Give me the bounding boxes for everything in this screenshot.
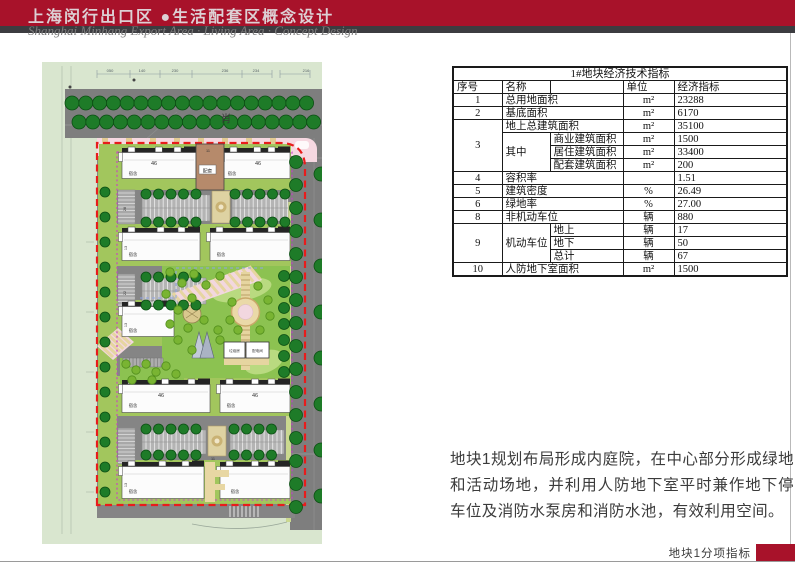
map-label: 46 — [255, 161, 261, 167]
cell-name: 基底面积 — [502, 107, 623, 120]
map-label: 46 — [151, 161, 157, 167]
cell-value: 67 — [674, 250, 787, 263]
map-label: 配电间 — [252, 348, 263, 353]
cell-unit: % — [623, 185, 674, 198]
cell-unit: 辆 — [623, 224, 674, 237]
map-label: 宿舍 — [129, 488, 138, 495]
map-label: 13 — [124, 323, 128, 327]
cell-value: 200 — [674, 159, 787, 172]
cell-unit: m² — [623, 120, 674, 133]
footer-rule — [0, 561, 795, 562]
cell-value: 50 — [674, 237, 787, 250]
cell-no: 9 — [453, 224, 502, 263]
cell-value: 1500 — [674, 263, 787, 277]
table-title: 1#地块经济技术指标 — [453, 67, 787, 81]
table-row: 4 容积率 1.51 — [453, 172, 787, 185]
map-label: 宿舍 — [227, 402, 236, 409]
col-header-name: 名称 — [502, 81, 550, 94]
map-label: 13 — [124, 483, 128, 487]
map-label: 垃圾房 — [229, 348, 240, 353]
map-label: 宿舍 — [231, 488, 240, 495]
description-paragraph: 地块1规划布局形成内庭院，在中心部分形成绿地和活动场地，并利用人防地下室平时兼作… — [450, 447, 794, 525]
cell-name: 建筑密度 — [502, 185, 623, 198]
map-label: 肖 — [221, 112, 232, 125]
cell-name: 绿地率 — [502, 198, 623, 211]
cell-no: 10 — [453, 263, 502, 277]
map-label: 050 — [107, 68, 114, 73]
cell-value: 33400 — [674, 146, 787, 159]
survey-point — [133, 79, 136, 82]
table-row: 6 绿地率 % 27.00 — [453, 198, 787, 211]
cell-value: 23288 — [674, 94, 787, 107]
map-label: 宿舍 — [129, 170, 138, 177]
cell-unit: m² — [623, 94, 674, 107]
cell-no: 3 — [453, 120, 502, 172]
table-row: 9 机动车位 地上 辆 17 — [453, 224, 787, 237]
cell-unit: m² — [623, 159, 674, 172]
cell-unit — [623, 172, 674, 185]
table-row: 2 基底面积 m² 6170 — [453, 107, 787, 120]
cell-subname: 商业建筑面积 — [550, 133, 623, 146]
map-label: 宿舍 — [228, 170, 237, 177]
map-label: 46 — [252, 393, 258, 399]
cell-unit: 辆 — [623, 211, 674, 224]
col-header-no: 序号 — [453, 81, 502, 94]
cell-subname: 配套建筑面积 — [550, 159, 623, 172]
cell-name: 非机动车位 — [502, 211, 623, 224]
cell-subname: 总计 — [550, 250, 623, 263]
cell-value: 17 — [674, 224, 787, 237]
cell-no: 2 — [453, 107, 502, 120]
cell-unit: m² — [623, 133, 674, 146]
cell-unit: m² — [623, 107, 674, 120]
table-row: 1 总用地面积 m² 23288 — [453, 94, 787, 107]
cell-value: 35100 — [674, 120, 787, 133]
table-row: 其中 商业建筑面积 m² 1500 — [453, 133, 787, 146]
map-label: 46 — [158, 393, 164, 399]
col-header-unit: 单位 — [623, 81, 674, 94]
map-label: 234 — [253, 68, 260, 73]
cell-name: 机动车位 — [502, 224, 550, 263]
cell-value: 27.00 — [674, 198, 787, 211]
col-header-empty — [550, 81, 623, 94]
cell-no: 6 — [453, 198, 502, 211]
cell-unit: 辆 — [623, 250, 674, 263]
cell-unit: 辆 — [623, 237, 674, 250]
cell-subname: 居住建筑面积 — [550, 146, 623, 159]
col-header-indicator: 经济指标 — [674, 81, 787, 94]
table-row: 10 人防地下室面积 m² 1500 — [453, 263, 787, 277]
slide: 上海闵行出口区 ●生活配套区概念设计 Shanghai Minhang Expo… — [0, 0, 795, 563]
site-plan-map: 050140230236234216肖464611配套宿舍宿舍宿舍宿舍宿舍464… — [42, 62, 322, 544]
map-label: 22 — [123, 291, 127, 295]
cell-name: 总用地面积 — [502, 94, 623, 107]
cell-name: 人防地下室面积 — [502, 263, 623, 277]
map-label: 宿舍 — [217, 251, 226, 258]
cell-name: 容积率 — [502, 172, 623, 185]
cell-no: 1 — [453, 94, 502, 107]
cell-name: 地上总建筑面积 — [502, 120, 623, 133]
cell-value: 880 — [674, 211, 787, 224]
cell-value: 1.51 — [674, 172, 787, 185]
map-label: 11 — [206, 149, 210, 153]
cell-value: 1500 — [674, 133, 787, 146]
bottom-road — [97, 505, 295, 518]
map-label: 配套 — [203, 168, 213, 175]
map-label: 236 — [222, 68, 229, 73]
cell-subname: 地上 — [550, 224, 623, 237]
cell-no: 8 — [453, 211, 502, 224]
cell-no: 4 — [453, 172, 502, 185]
cell-value: 6170 — [674, 107, 787, 120]
cell-unit: m² — [623, 146, 674, 159]
page-subtitle: Shanghai Minhang Export Area · Living Ar… — [28, 23, 358, 39]
footer-label: 地块1分项指标 — [669, 545, 751, 561]
footer-red-block — [756, 544, 795, 561]
cell-unit: % — [623, 198, 674, 211]
map-label: 宿舍 — [129, 251, 138, 258]
table-row: 8 非机动车位 辆 880 — [453, 211, 787, 224]
table-row: 3 地上总建筑面积 m² 35100 — [453, 120, 787, 133]
cell-subname: 地下 — [550, 237, 623, 250]
map-label: 11 — [211, 457, 215, 461]
cell-no: 5 — [453, 185, 502, 198]
site-plan-svg: 050140230236234216肖464611配套宿舍宿舍宿舍宿舍宿舍464… — [42, 62, 322, 544]
indicator-table: 1#地块经济技术指标 序号 名称 单位 经济指标 1 总用地面积 m² 2328… — [452, 66, 786, 277]
map-label: 230 — [172, 68, 179, 73]
map-label: 28 — [123, 207, 127, 211]
map-label: 宿舍 — [129, 327, 138, 334]
survey-point — [69, 86, 72, 89]
map-label: 140 — [139, 68, 146, 73]
map-label: 216 — [303, 68, 310, 73]
cell-name: 其中 — [502, 133, 550, 172]
cell-value: 26.49 — [674, 185, 787, 198]
map-label: 宿舍 — [129, 402, 138, 409]
table-row: 5 建筑密度 % 26.49 — [453, 185, 787, 198]
cell-unit: m² — [623, 263, 674, 277]
map-label: 13 — [124, 246, 128, 250]
